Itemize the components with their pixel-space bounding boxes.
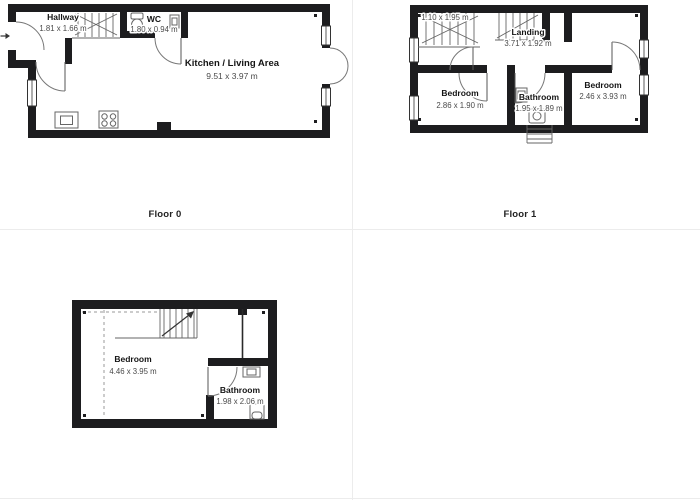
- door-arc: [36, 38, 181, 91]
- corner-dots: [314, 14, 317, 123]
- floor0-hallway-name: Hallway: [47, 12, 79, 22]
- floor0-hallway-dims: 1.81 x 1.66 m: [39, 24, 86, 33]
- ceiling-dashed-line: [82, 310, 160, 418]
- kitchen-sink-icon: [55, 112, 78, 128]
- floor2-plan: Bedroom 4.46 x 3.95 m Bathroom 1.98 x 2.…: [0, 229, 352, 500]
- hob-icon: [99, 111, 118, 128]
- floor1-caption: Floor 1: [503, 209, 537, 220]
- floor2-bedroom-dims: 4.46 x 3.95 m: [109, 367, 156, 376]
- floor1-stairspace-dims: 1.10 x 1.95 m: [421, 13, 468, 22]
- horizontal-divider: [0, 229, 700, 230]
- stairs-direction-arrow: [162, 311, 194, 336]
- floorplan-page: Hallway 1.81 x 1.66 m WC 1.80 x 0.94 m K…: [0, 0, 700, 500]
- floor1-bathroom-name: Bathroom: [519, 92, 560, 102]
- stairs-icon: [115, 309, 197, 338]
- floor2-bedroom-name: Bedroom: [114, 354, 152, 364]
- floor1-bathroom-dims: 1.95 x 1.89 m: [515, 104, 562, 113]
- floor2-bathroom-dims: 1.98 x 2.06 m: [216, 397, 263, 406]
- floor1-landing-name: Landing: [511, 27, 544, 37]
- floor1-bedroom-right-dims: 2.46 x 3.93 m: [579, 92, 626, 101]
- floor0-caption: Floor 0: [148, 209, 181, 220]
- floor0-wc-dims: 1.80 x 0.94 m: [130, 25, 177, 34]
- bottom-divider: [0, 498, 700, 499]
- floor1-landing-dims: 3.71 x 1.92 m: [504, 39, 551, 48]
- french-doors: [321, 48, 348, 84]
- floor0-kitchen-name: Kitchen / Living Area: [185, 58, 280, 69]
- floor2-walls: [72, 300, 277, 428]
- floor1-bedroom-right-name: Bedroom: [584, 80, 622, 90]
- floor0-plan: Hallway 1.81 x 1.66 m WC 1.80 x 0.94 m K…: [0, 0, 352, 229]
- sink-icon: [243, 367, 260, 377]
- toilet-icon: [250, 404, 264, 419]
- floor2-bathroom-name: Bathroom: [220, 385, 261, 395]
- floor1-bedroom-left-name: Bedroom: [441, 88, 479, 98]
- vertical-divider: [352, 0, 353, 500]
- floor1-bedroom-left-dims: 2.86 x 1.90 m: [436, 101, 483, 110]
- floor0-kitchen-dims: 9.51 x 3.97 m: [206, 71, 258, 81]
- floor0-wc-name: WC: [147, 14, 161, 24]
- floor1-plan: 1.10 x 1.95 m Landing 3.71 x 1.92 m Bedr…: [352, 0, 700, 229]
